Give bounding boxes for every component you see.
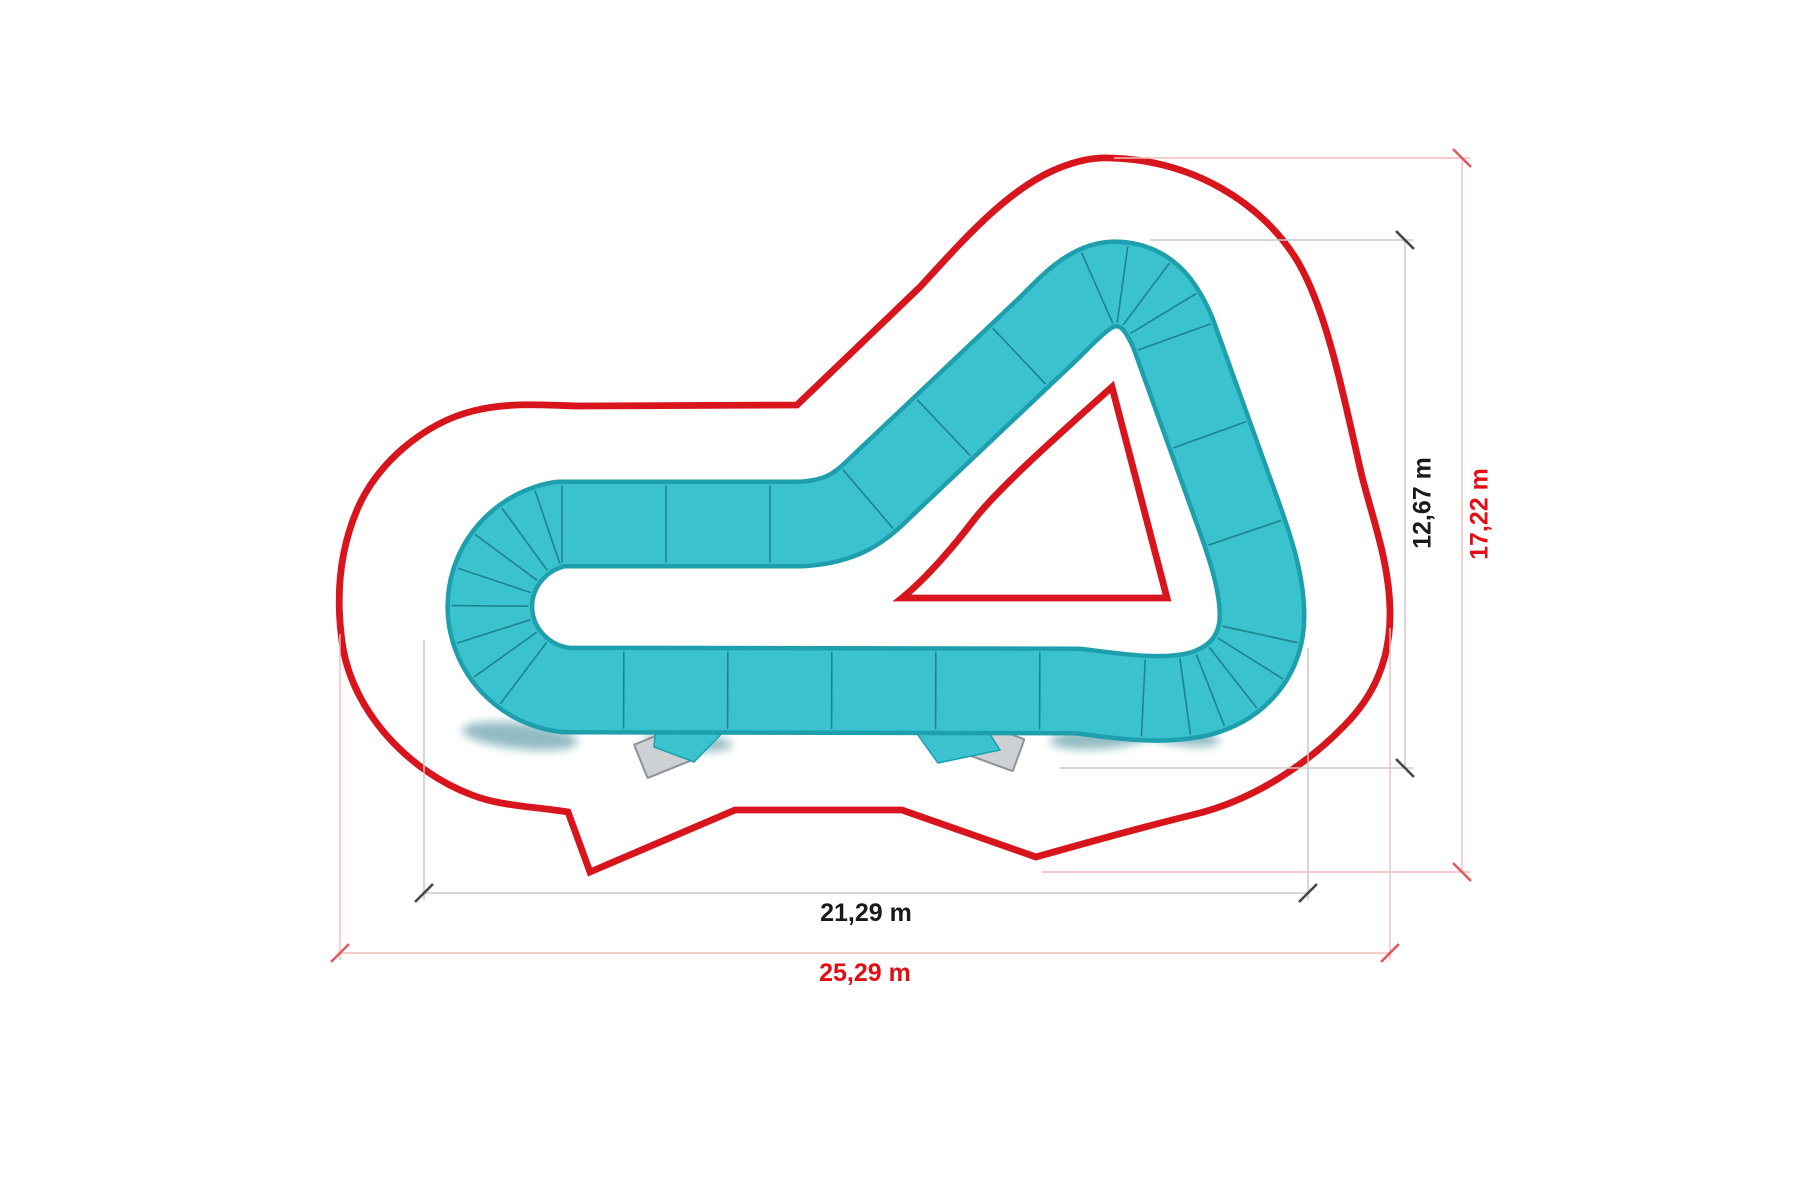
track-surface bbox=[490, 284, 1262, 698]
dimension-label: 25,29 m bbox=[819, 959, 911, 987]
dimension-label: 12,67 m bbox=[1409, 457, 1437, 549]
dimension-label: 21,29 m bbox=[820, 899, 912, 927]
dimension-label: 17,22 m bbox=[1466, 468, 1494, 560]
pump-track-plan: 12,67 m 17,22 m 21,29 m 25,29 bbox=[0, 0, 1800, 1200]
track bbox=[451, 246, 1297, 736]
pump-track-plan-svg: 12,67 m 17,22 m 21,29 m 25,29 bbox=[0, 0, 1800, 1200]
segment-line bbox=[451, 606, 528, 607]
